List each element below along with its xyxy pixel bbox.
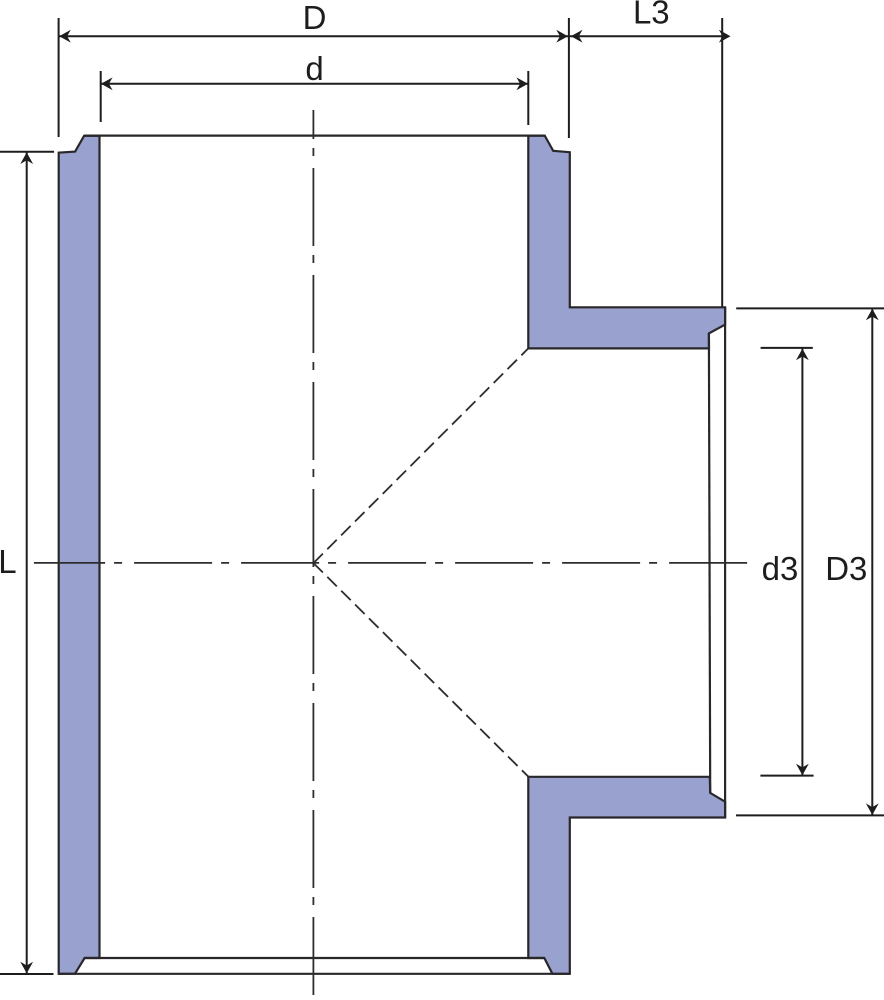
svg-text:L: L bbox=[0, 543, 17, 580]
svg-text:d: d bbox=[305, 50, 323, 87]
svg-text:L3: L3 bbox=[633, 0, 670, 31]
svg-text:d3: d3 bbox=[762, 550, 799, 587]
svg-text:D3: D3 bbox=[825, 550, 867, 587]
svg-text:D: D bbox=[303, 0, 327, 36]
